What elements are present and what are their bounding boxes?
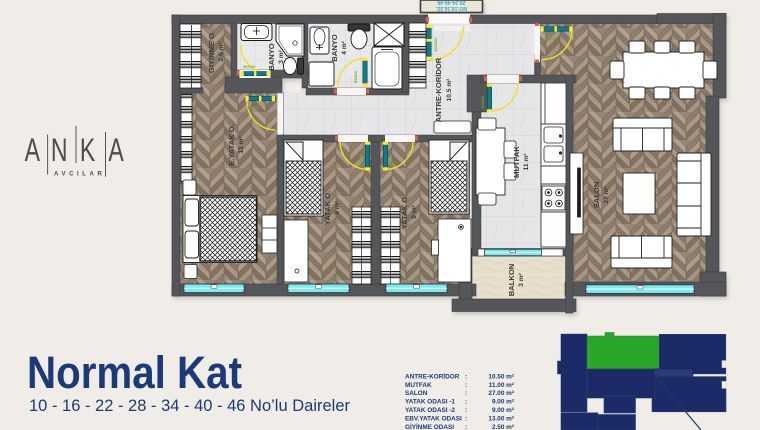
svg-text:AVCILAR: AVCILAR (54, 172, 105, 178)
svg-text:YATAK O.: YATAK O. (400, 195, 409, 229)
svg-text:3 m²: 3 m² (278, 49, 285, 63)
svg-text::: : (465, 407, 467, 414)
svg-text:MUTFAK: MUTFAK (512, 146, 521, 178)
svg-text:27 m²: 27 m² (603, 186, 610, 204)
svg-text:MUTFAK: MUTFAK (405, 382, 432, 389)
svg-text::: : (465, 373, 467, 380)
svg-text:80/210: 80/210 (388, 153, 393, 166)
svg-text::: : (465, 382, 467, 389)
svg-text:BANYO: BANYO (330, 34, 339, 62)
svg-text:E.YATAK O.: E.YATAK O. (227, 124, 236, 166)
svg-text:N: N (51, 132, 68, 168)
svg-text:EBV.YATAK ODASI: EBV.YATAK ODASI (405, 415, 462, 422)
svg-text:Normal Kat: Normal Kat (27, 347, 242, 398)
svg-text:80/210: 80/210 (480, 95, 485, 108)
svg-text::: : (465, 424, 467, 430)
svg-text:9 m²: 9 m² (334, 200, 341, 214)
svg-text:13 m²: 13 m² (238, 136, 245, 154)
svg-text:10 - 16 - 22 - 28 - 34 - 40 -: 10 - 16 - 22 - 28 - 34 - 40 - 46 No’lu D… (29, 396, 350, 415)
svg-text:GİYİNME O.: GİYİNME O. (207, 31, 216, 73)
svg-text:2.5 m²: 2.5 m² (218, 42, 225, 62)
svg-text:4 m²: 4 m² (341, 40, 348, 54)
svg-text:160/95: 160/95 (247, 105, 260, 110)
svg-text:3 m²: 3 m² (518, 272, 525, 286)
svg-text:A: A (108, 132, 124, 168)
svg-text:9 m²: 9 m² (411, 204, 418, 218)
svg-text:YATAK ODASI -1: YATAK ODASI -1 (405, 399, 455, 406)
svg-text::: : (465, 415, 467, 422)
svg-text:ANTRE-KORİDOR: ANTRE-KORİDOR (405, 371, 460, 380)
svg-text::: : (465, 399, 467, 406)
svg-text:SALON: SALON (405, 390, 428, 397)
svg-text:GİYİNME ODASI: GİYİNME ODASI (405, 422, 454, 430)
svg-text:80/210: 80/210 (243, 64, 256, 69)
svg-text:28-34-40-46: 28-34-40-46 (437, 0, 465, 5)
svg-text:A: A (25, 132, 41, 168)
svg-text:BALKON: BALKON (507, 264, 516, 296)
svg-text:90/210: 90/210 (544, 36, 557, 41)
svg-text:ANTRE-KORİDOR: ANTRE-KORİDOR (434, 57, 443, 122)
svg-text:11 m²: 11 m² (523, 153, 530, 171)
svg-text:YATAK ODASI -2: YATAK ODASI -2 (405, 407, 455, 414)
svg-text:9.00 m²: 9.00 m² (492, 399, 514, 406)
svg-text:10.50 m²: 10.50 m² (488, 373, 514, 380)
svg-text:27.00 m²: 27.00 m² (488, 390, 514, 397)
svg-text:10.5 m²: 10.5 m² (446, 78, 453, 102)
svg-text:SALON: SALON (592, 182, 601, 209)
svg-text:BANYO: BANYO (267, 43, 276, 71)
svg-text:K: K (80, 132, 96, 168)
svg-text:80/210: 80/210 (358, 153, 363, 166)
svg-text:9.00 m²: 9.00 m² (492, 407, 514, 414)
svg-text:85/210: 85/210 (353, 70, 358, 83)
svg-text:13.00 m²: 13.00 m² (488, 415, 514, 422)
svg-text::: : (465, 390, 467, 397)
svg-text:11.00 m²: 11.00 m² (489, 382, 514, 389)
svg-text:100/220: 100/220 (433, 37, 438, 52)
svg-text:2.50 m²: 2.50 m² (492, 424, 514, 430)
svg-text:YATAK O.: YATAK O. (323, 191, 332, 225)
